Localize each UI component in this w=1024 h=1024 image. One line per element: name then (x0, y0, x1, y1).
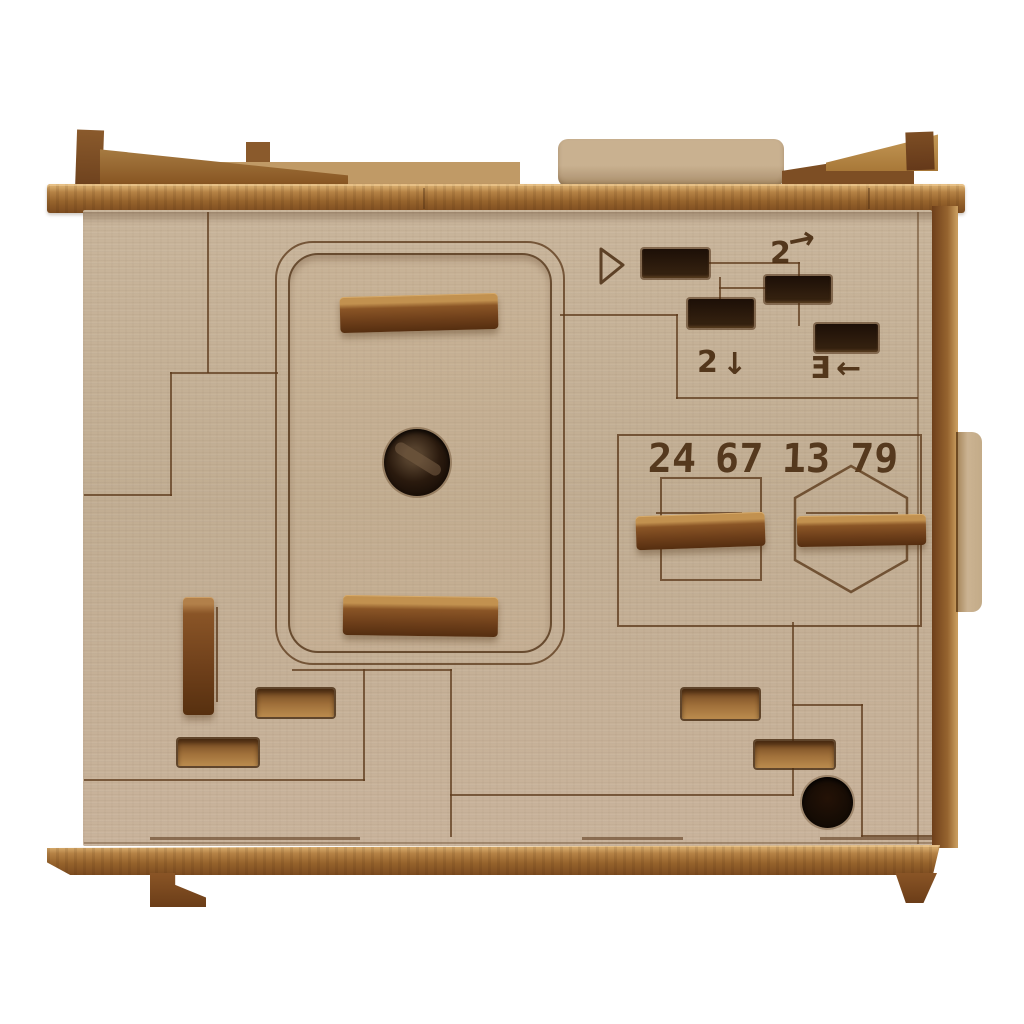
puzzle-box: 2 → 2 ↓ Ǝ ← 24 67 13 79 (0, 0, 1024, 1024)
arrow-slot (815, 324, 878, 352)
vertical-slider-handle (183, 597, 214, 715)
slide-slot (682, 689, 759, 719)
engraved-line (292, 669, 452, 671)
slide-slot (257, 689, 334, 717)
door-finger-hole (384, 429, 450, 496)
lid-seam (423, 188, 425, 209)
marble-hole (802, 777, 853, 828)
top-raised-plank (558, 139, 784, 187)
bottom-tab-mark (582, 837, 683, 840)
photo-canvas: 2 → 2 ↓ Ǝ ← 24 67 13 79 (0, 0, 1024, 1024)
engraved-line (363, 669, 365, 781)
box-right-edge (932, 206, 958, 848)
engraved-line (792, 704, 863, 706)
door-top-handle (340, 293, 499, 333)
engraved-line (719, 287, 767, 289)
box-foot-left (150, 873, 206, 907)
hexagon-dial-handle (797, 514, 927, 547)
glyph-digit: 2 (697, 345, 718, 380)
engraved-line (792, 622, 794, 796)
arrow-slot (642, 249, 709, 278)
play-triangle-engraving (597, 245, 627, 287)
box-foot-right (885, 873, 937, 903)
engraved-line (84, 494, 172, 496)
arrow-down-icon: ↓ (722, 347, 747, 382)
engraved-line (170, 372, 278, 374)
back-post-right (905, 132, 934, 171)
code-number: 24 (647, 436, 697, 480)
slide-slot (178, 739, 258, 766)
bottom-tab-mark (820, 837, 932, 840)
slide-slot (755, 741, 834, 768)
hole-inner-reflection (393, 440, 443, 478)
side-slider-tab (956, 432, 982, 612)
glyph-two-down: 2 ↓ (697, 345, 757, 391)
engraved-line (170, 372, 172, 496)
glyph-three-left: Ǝ ← (810, 349, 872, 395)
box-lid (47, 184, 965, 213)
engraved-line (84, 779, 365, 781)
engraved-line (450, 669, 452, 837)
code-number: 67 (714, 436, 764, 480)
engraved-line (798, 302, 800, 326)
square-dial-handle (635, 512, 765, 550)
glyph-digit: Ǝ (810, 351, 831, 386)
glyph-two-right: 2 → (770, 224, 830, 272)
slider-slot-line (216, 607, 218, 702)
box-base (47, 845, 940, 875)
lid-seam (868, 188, 870, 209)
bottom-tab-mark (150, 837, 360, 840)
engraved-line (676, 314, 678, 399)
engraved-line (450, 794, 794, 796)
engraved-line (560, 314, 678, 316)
bottom-joint-line (84, 842, 932, 844)
arrow-left-icon: ← (836, 351, 861, 386)
engraved-line (676, 397, 918, 399)
engraved-line (207, 212, 209, 373)
engraved-line (861, 704, 863, 837)
arrow-slot (765, 276, 831, 303)
door-bottom-handle (343, 595, 499, 637)
arrow-slot (688, 299, 754, 328)
back-tab-small (246, 142, 270, 162)
